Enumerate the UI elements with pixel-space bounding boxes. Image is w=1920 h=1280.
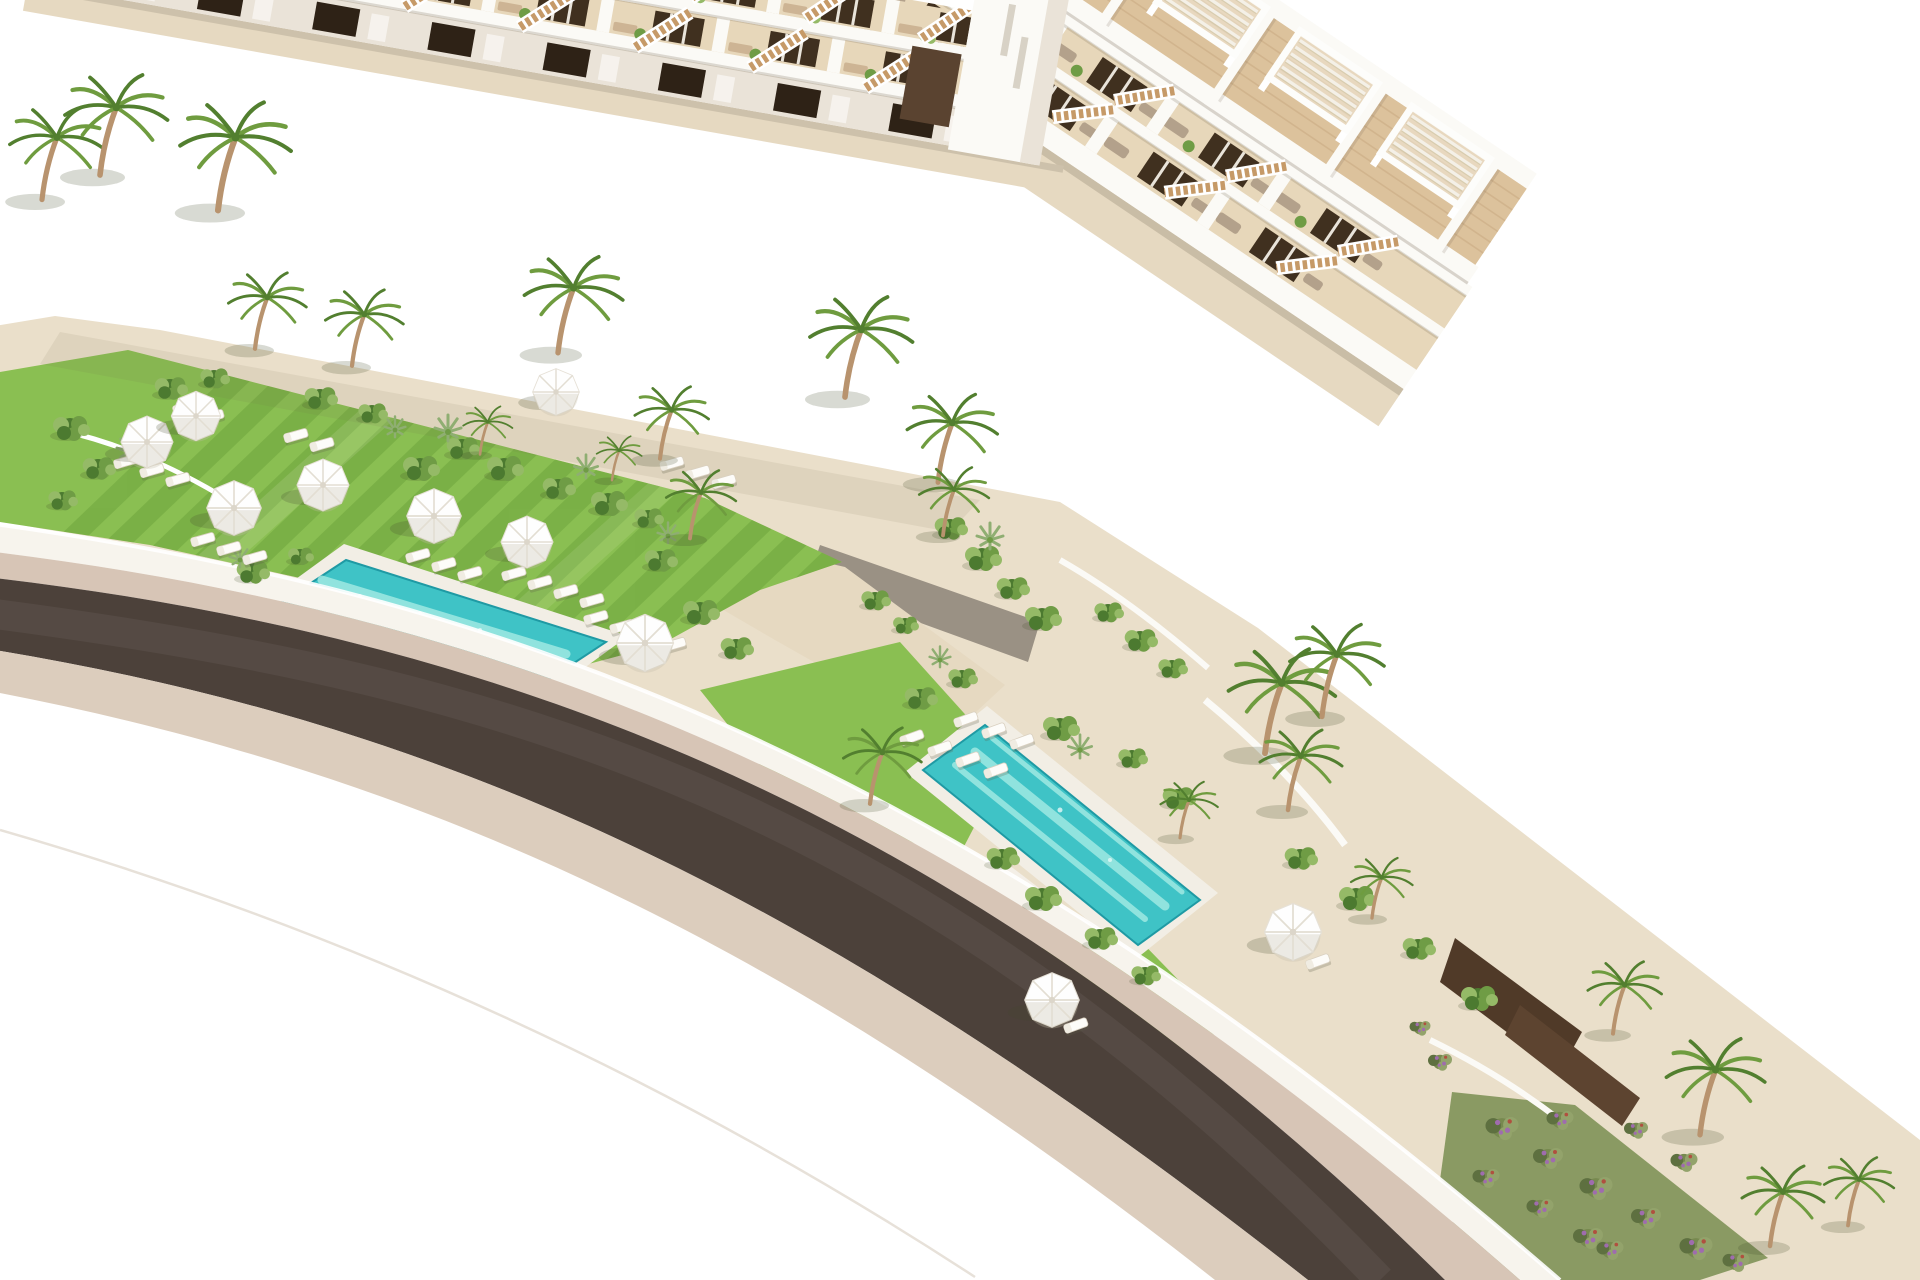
render-canvas: [0, 0, 1920, 1280]
agave-plant: [435, 415, 461, 441]
agave-plant: [574, 455, 597, 478]
architectural-render: [0, 0, 1920, 1280]
agave-plant: [385, 416, 406, 437]
agave-plant: [977, 523, 1003, 549]
agave-plant: [1068, 735, 1091, 758]
agave-plant: [930, 646, 951, 667]
